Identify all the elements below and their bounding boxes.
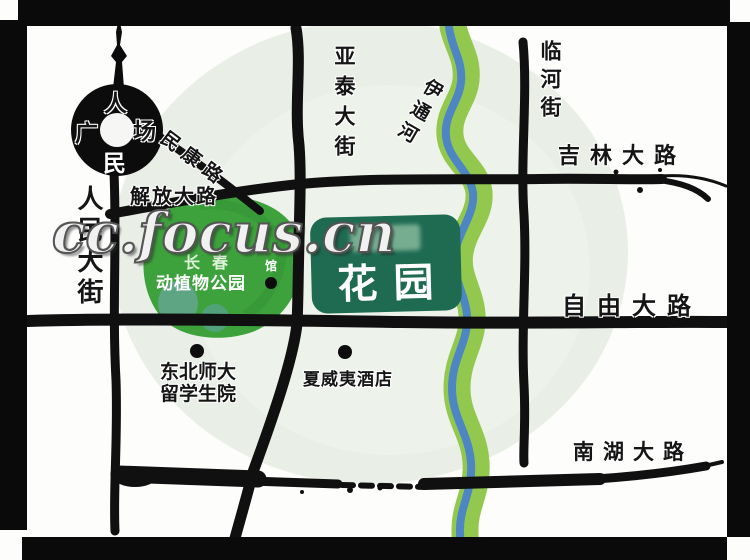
watermark-text: cc.focus.cn [52, 200, 396, 265]
square-char-bottom: 民 [103, 144, 126, 178]
park-label-name: 动植物公园 [156, 269, 246, 294]
square-char-top: 人 [104, 84, 127, 118]
roundabout-center [100, 113, 134, 147]
frame-right [727, 22, 750, 537]
poi-dot-hotel [338, 345, 352, 359]
street-label-nanhu-dalu: 南湖大路 [573, 436, 693, 466]
road-linhe-jie [523, 42, 525, 463]
street-label-ziyou-dalu: 自由大路 [562, 286, 702, 321]
poi-dot-university [190, 344, 204, 358]
street-label-jilin-dalu: 吉林大路 [558, 138, 686, 170]
frame-left [0, 20, 27, 530]
poi-label-university: 东北师大 留学生院 [160, 361, 236, 406]
poi-university-line1: 东北师大 [160, 361, 236, 383]
frame-bottom [22, 537, 727, 560]
square-char-left: 广 [75, 114, 98, 148]
square-char-right: 场 [133, 112, 156, 146]
poi-label-hotel: 夏威夷酒店 [303, 365, 393, 390]
monument-spire [111, 18, 127, 88]
street-label-linhe-jie: 临河街 [535, 40, 565, 124]
poi-university-line2: 留学生院 [160, 383, 236, 405]
street-label-yatai-dajie: 亚泰大街 [329, 45, 359, 165]
poi-dot-hall [265, 277, 277, 289]
map-stage: 人 广 场 民 人民大街 解放大路 民康路 亚泰大街 伊通河 临河街 吉林大路 … [0, 0, 750, 560]
frame-top [18, 0, 730, 26]
